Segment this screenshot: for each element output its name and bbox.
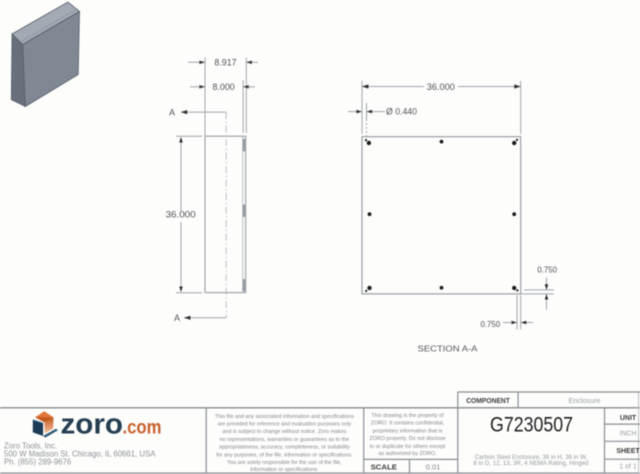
svg-text:zoro: zoro [61,409,124,441]
svg-text:8.000: 8.000 [213,82,235,92]
svg-text:This drawing is the property o: This drawing is the property of [371,413,444,419]
svg-text:Ø 0.440: Ø 0.440 [386,107,417,117]
svg-text:and is subject to change witho: and is subject to change without notice.… [222,429,346,435]
svg-text:This file and any associated i: This file and any associated information… [215,414,354,420]
svg-text:UNIT: UNIT [620,415,637,422]
svg-text:are provided for reference and: are provided for reference and evaluatio… [218,422,352,428]
svg-text:as authorized by ZORO.: as authorized by ZORO. [378,451,436,457]
svg-text:information or specifications.: information or specifications. [250,467,318,473]
svg-text:.com: .com [123,418,162,439]
svg-text:for any purposes, of the file,: for any purposes, of the file, informati… [216,452,352,458]
svg-text:0.750: 0.750 [481,319,501,329]
svg-text:INCH: INCH [619,430,636,437]
svg-text:0.750: 0.750 [537,264,557,274]
svg-text:SHEET: SHEET [616,448,640,455]
svg-text:A: A [169,107,175,117]
svg-text:COMPONENT: COMPONENT [466,396,510,405]
svg-text:0.01: 0.01 [426,463,441,472]
svg-text:Ph. (855) 289-9676: Ph. (855) 289-9676 [4,457,71,466]
svg-text:G7230507: G7230507 [490,413,573,437]
svg-text:proprietary information that i: proprietary information that is [373,428,443,434]
svg-text:1 of 1: 1 of 1 [619,464,637,471]
svg-text:ZORO. It contains confidential: ZORO. It contains confidential, [371,421,445,427]
svg-text:SECTION A-A: SECTION A-A [418,344,479,354]
svg-text:A: A [174,313,180,323]
svg-text:no representations, warranties: no representations, warranties or guaran… [220,437,349,443]
svg-text:appropriateness, accuracy, com: appropriateness, accuracy, completeness,… [219,445,350,451]
svg-text:8 in D, 12, 13, 3R, 4 NEMA Rat: 8 in D, 12, 13, 3R, 4 NEMA Rating, Hinge… [473,460,588,467]
svg-text:36.000: 36.000 [427,82,455,92]
svg-text:8.917: 8.917 [214,57,236,67]
svg-text:Enclosure: Enclosure [569,396,601,405]
svg-text:ZORO property. Do not disclose: ZORO property. Do not disclose [369,436,445,442]
svg-text:36.000: 36.000 [166,210,196,220]
svg-text:to or duplicate for others exc: to or duplicate for others except [370,444,446,450]
svg-text:You are solely responsible for: You are solely responsible for the use o… [227,460,342,466]
svg-text:SCALE: SCALE [371,463,397,472]
